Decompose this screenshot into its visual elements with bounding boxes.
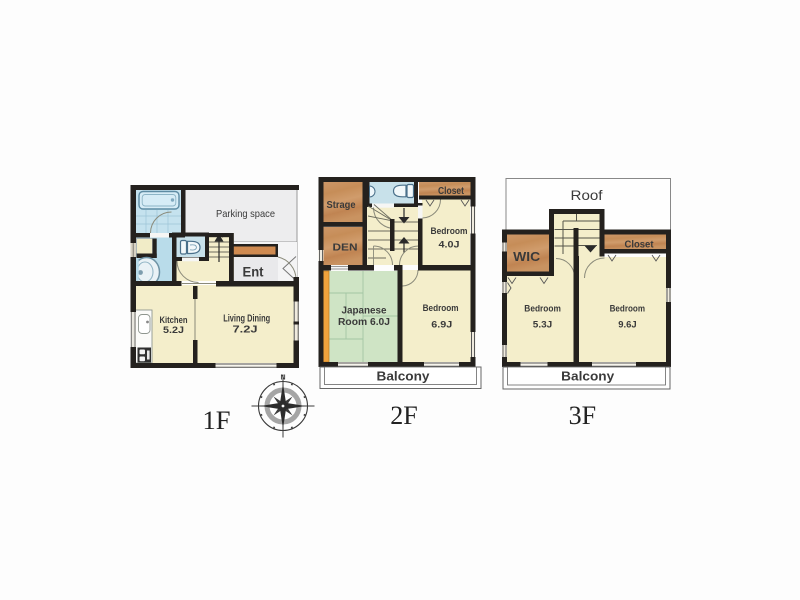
svg-text:7.2J: 7.2J bbox=[233, 324, 258, 336]
svg-text:Parking space: Parking space bbox=[216, 208, 275, 220]
svg-text:5.3J: 5.3J bbox=[533, 319, 553, 330]
svg-text:2F: 2F bbox=[390, 401, 417, 430]
svg-text:9.6J: 9.6J bbox=[618, 319, 636, 330]
svg-text:WIC: WIC bbox=[513, 249, 541, 264]
svg-text:1F: 1F bbox=[203, 406, 231, 435]
svg-text:Japanese: Japanese bbox=[342, 306, 387, 317]
svg-text:Bedroom: Bedroom bbox=[524, 304, 561, 315]
svg-text:Balcony: Balcony bbox=[377, 369, 431, 384]
svg-text:Bedroom: Bedroom bbox=[423, 303, 459, 314]
svg-text:Bedroom: Bedroom bbox=[610, 304, 645, 315]
svg-text:Bedroom: Bedroom bbox=[431, 226, 468, 237]
svg-text:Ent: Ent bbox=[243, 264, 264, 280]
svg-text:Strage: Strage bbox=[327, 200, 356, 211]
svg-text:DEN: DEN bbox=[333, 242, 358, 254]
svg-text:Closet: Closet bbox=[625, 240, 655, 251]
svg-text:Balcony: Balcony bbox=[561, 369, 615, 384]
svg-text:Roof: Roof bbox=[571, 187, 603, 203]
svg-text:Room 6.0J: Room 6.0J bbox=[338, 317, 390, 328]
svg-text:5.2J: 5.2J bbox=[163, 325, 184, 336]
svg-text:4.0J: 4.0J bbox=[439, 240, 460, 251]
svg-text:N: N bbox=[280, 375, 285, 382]
svg-text:6.9J: 6.9J bbox=[431, 320, 452, 331]
svg-text:3F: 3F bbox=[569, 401, 596, 430]
svg-text:Closet: Closet bbox=[438, 186, 465, 197]
